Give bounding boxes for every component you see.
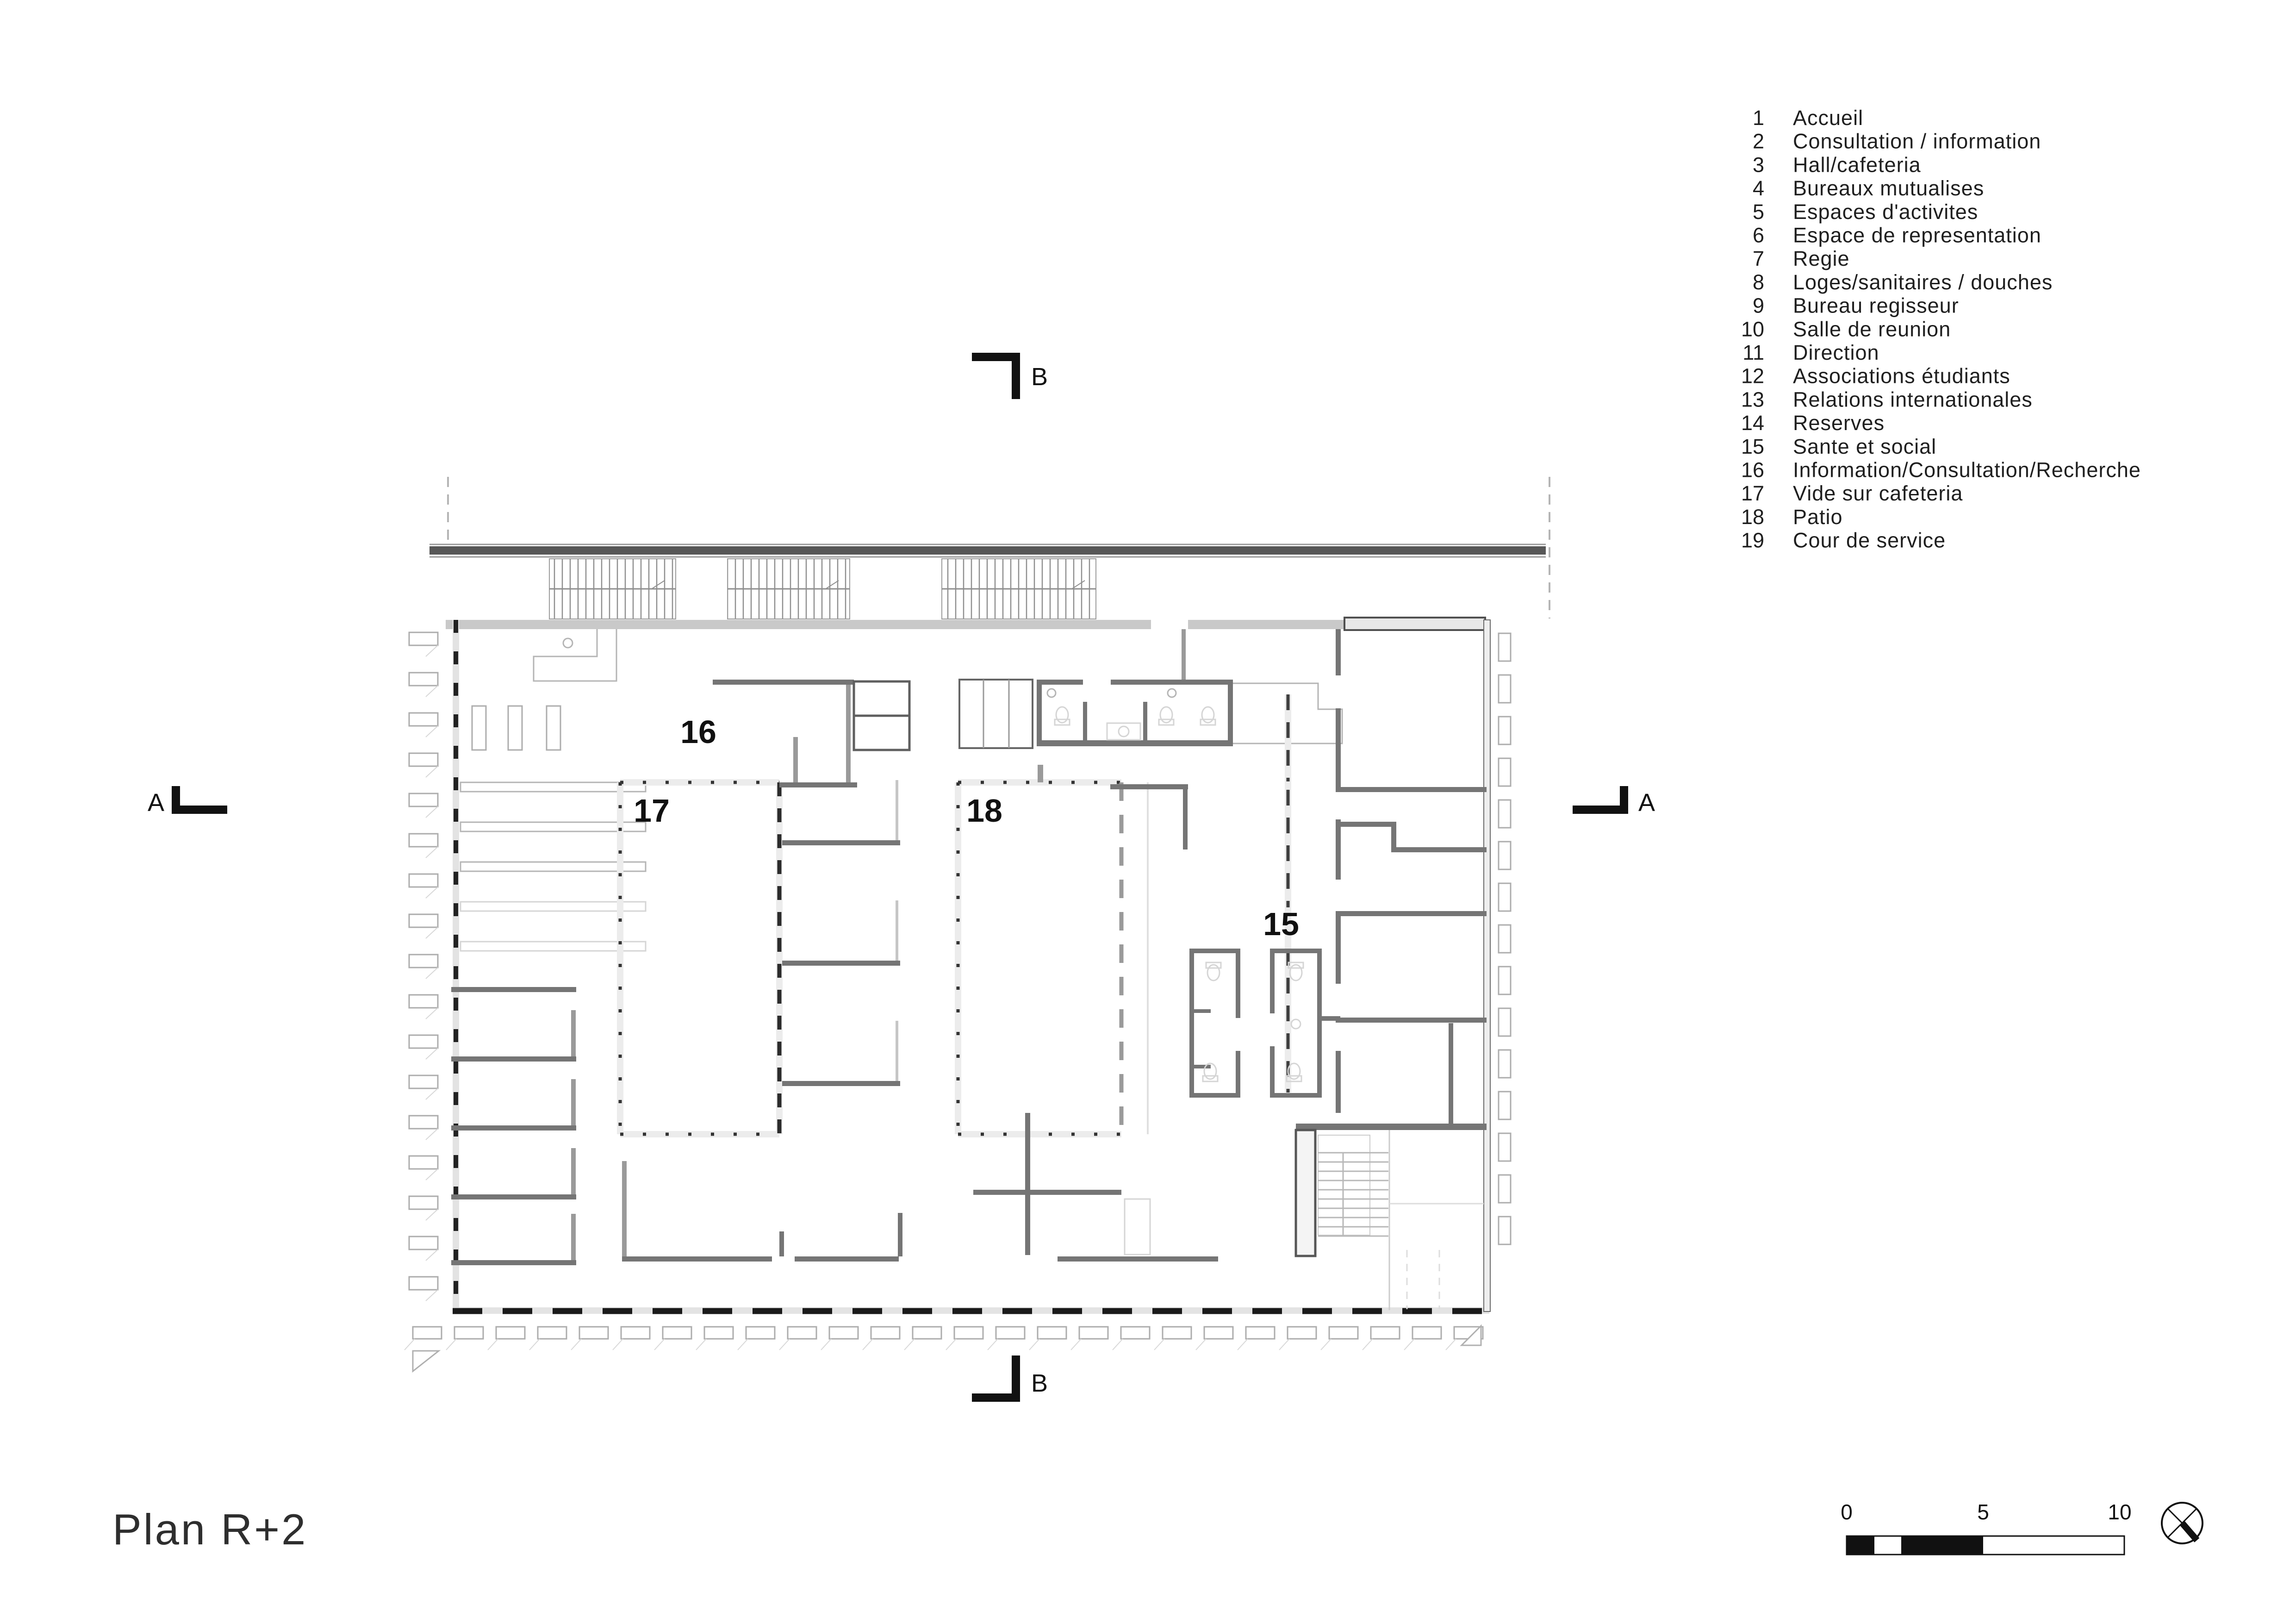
sanitary-cabins-part [1194, 1065, 1211, 1068]
wc-fixture-icon [1201, 707, 1215, 725]
legend-item-label: Accueil [1793, 106, 1863, 130]
reception-desk [534, 629, 616, 681]
sanitary-block-top-part [1107, 723, 1140, 740]
facade-fins-right [1499, 633, 1511, 1244]
sanitary-block-top-part [1228, 680, 1233, 746]
fin-tick [946, 1339, 956, 1350]
room-label-16: 16 [680, 714, 716, 750]
legend-item-number: 1 [1753, 106, 1764, 130]
sanitary-block-top-part [1047, 689, 1056, 697]
regie-walls [713, 680, 1033, 787]
legend-item-label: Cour de service [1793, 529, 1946, 552]
wc-fixture-icon [1206, 962, 1221, 981]
south-rooms-walls-part [898, 1213, 902, 1256]
wc-fixture-icon-part [1207, 965, 1220, 981]
fin-tick [1238, 1339, 1248, 1350]
sanitary-cabins-part [1270, 949, 1322, 953]
facade-fin [1079, 1327, 1108, 1339]
facade-fin [1499, 1217, 1511, 1244]
sanitary-cabins-part [1270, 1046, 1275, 1098]
regie-walls-part [846, 685, 851, 787]
shelving-units-part [472, 706, 486, 750]
south-rooms-walls-part [1058, 1256, 1218, 1262]
facade-fin [1412, 1327, 1441, 1339]
legend-item-label: Reserves [1793, 411, 1885, 435]
fin-tick [426, 847, 438, 858]
right-wing-walls-part [1336, 819, 1341, 880]
floor-plan: 16 17 18 15 [404, 477, 1549, 1371]
facade-fin [409, 753, 438, 766]
skylight-hatch-part [728, 559, 850, 619]
south-rooms-walls-part [1025, 1113, 1030, 1255]
facade-fin [1499, 967, 1511, 994]
staircase-part [1318, 1135, 1370, 1235]
sanitary-cabins-part [1322, 1016, 1340, 1021]
facade-fin [409, 673, 438, 686]
sanitary-cabins-part [1291, 1019, 1300, 1029]
reception-desk-part [563, 638, 572, 648]
page-title: Plan R+2 [112, 1505, 307, 1554]
partition-wall [782, 1081, 900, 1086]
fin-tick [1196, 1339, 1206, 1350]
sanitary-block-top-part [1037, 680, 1042, 745]
fin-tick [426, 1249, 438, 1261]
top-wall [446, 618, 1485, 680]
facade-fin [409, 834, 438, 847]
legend-item-number: 10 [1741, 317, 1764, 341]
legend-item-number: 13 [1741, 387, 1764, 411]
facade-fin [1499, 925, 1511, 953]
legend-item-number: 4 [1753, 176, 1764, 200]
partition-return [896, 900, 898, 961]
fin-tick [571, 1339, 581, 1350]
partition-wall [451, 1260, 576, 1265]
legend-item-label: Information/Consultation/Recherche [1793, 458, 2141, 482]
north-arrow-icon-part [2182, 1523, 2197, 1540]
fin-tick [426, 766, 438, 777]
architectural-floor-plan: 16 17 18 15 B B A A 1Accueil2Consultat [0, 0, 2296, 1624]
south-rooms-walls-part [973, 1190, 1121, 1195]
fin-tick [696, 1339, 706, 1350]
sanitary-cabins [1189, 949, 1340, 1098]
facade-fin [746, 1327, 775, 1339]
legend-item-number: 2 [1753, 130, 1764, 153]
partition-return [571, 1148, 576, 1194]
sanitary-cabins-part [1189, 1093, 1240, 1098]
facade-fin [409, 1035, 438, 1048]
legend-item-label: Consultation / information [1793, 130, 2041, 153]
fin-tick [488, 1339, 498, 1350]
fin-tick [426, 1008, 438, 1019]
legend-item-label: Espaces d'activites [1793, 200, 1978, 224]
right-wing-walls-part [1391, 822, 1396, 850]
facade-fin [409, 1196, 438, 1209]
fin-tick [654, 1339, 665, 1350]
facade-fin [1371, 1327, 1400, 1339]
legend-item-number: 17 [1741, 481, 1764, 505]
legend-item-label: Espace de representation [1793, 224, 2041, 247]
shelving-units-part [508, 706, 522, 750]
facade-fin [1499, 1175, 1511, 1203]
facade-fin [409, 955, 438, 968]
facade-fin [1288, 1327, 1316, 1339]
south-rooms-walls-part [622, 1161, 627, 1256]
bottom-facade [453, 1307, 1489, 1314]
facade-fin [1329, 1327, 1358, 1339]
regie-walls-part [713, 680, 854, 685]
facade-fin [1121, 1327, 1150, 1339]
fin-tick [1029, 1339, 1039, 1350]
sanitary-cabins-part [1317, 949, 1322, 1098]
partition-wall [451, 1194, 576, 1199]
legend-item-label: Patio [1793, 505, 1843, 529]
right-wing-walls-part [1336, 787, 1487, 792]
right-wing-walls-part [1391, 847, 1487, 852]
legend-item-label: Associations étudiants [1793, 364, 2010, 388]
sanitary-block-top-part [1119, 726, 1129, 737]
fin-tick [613, 1339, 623, 1350]
facade-fin [1499, 842, 1511, 869]
facade-fin [1163, 1327, 1191, 1339]
right-wing-walls [1336, 629, 1487, 1124]
facade-fin [1204, 1327, 1233, 1339]
sanitary-cabins-part [1189, 949, 1194, 1098]
fin-tick [1446, 1339, 1456, 1350]
legend-item-number: 14 [1741, 411, 1764, 435]
legend-item-label: Relations internationales [1793, 387, 2033, 411]
wc-fixture-icon-part [1160, 707, 1172, 723]
roof-canopy [429, 544, 1546, 557]
facade-fin [454, 1327, 483, 1339]
legend-item-number: 3 [1753, 153, 1764, 176]
section-marker-a-left-part [172, 806, 227, 814]
facade-fin [409, 1156, 438, 1169]
patio-east-walls-part [1183, 789, 1188, 849]
facade-fin [1499, 1008, 1511, 1036]
facade-fin [1499, 717, 1511, 744]
fin-tick [404, 1339, 415, 1350]
fin-tick [738, 1339, 748, 1350]
right-wing-walls-part [1336, 1051, 1341, 1113]
legend-item-label: Vide sur cafeteria [1793, 481, 1963, 505]
fin-tick [1321, 1339, 1331, 1350]
sanitary-cabins-part [1236, 1051, 1240, 1098]
section-letter-b-bottom: B [1031, 1369, 1048, 1397]
fin-tick [426, 1209, 438, 1220]
sanitary-block-top-part [1037, 740, 1233, 746]
scale-bar-part [1901, 1536, 1983, 1555]
regie-walls-part [779, 782, 857, 787]
fin-tick [426, 1048, 438, 1059]
skylight-hatch-part [942, 559, 1096, 619]
legend-item-number: 16 [1741, 458, 1764, 482]
facade-fin [409, 874, 438, 887]
top-wall-part [446, 620, 1151, 629]
fin-tick [426, 1129, 438, 1140]
scale-bar: 0 5 10 [1841, 1500, 2131, 1555]
facade-fin [663, 1327, 691, 1339]
section-marker-b-bottom-part [972, 1393, 1020, 1402]
facade-fin [579, 1327, 608, 1339]
facade-fin [829, 1327, 858, 1339]
facade-fin [913, 1327, 941, 1339]
section-marker-b-bottom: B [972, 1355, 1048, 1402]
left-facade [453, 620, 459, 1312]
fin-tick [426, 806, 438, 818]
facade-fin [409, 995, 438, 1008]
right-wing-walls-part [1336, 708, 1341, 787]
right-facade [1484, 620, 1490, 1312]
facade-fin [704, 1327, 733, 1339]
sanitary-cabins-part [1270, 1093, 1322, 1098]
legend-item-label: Sante et social [1793, 435, 1936, 458]
south-rooms-walls-part [1125, 1199, 1150, 1255]
fin-tick [426, 968, 438, 979]
legend-item-label: Regie [1793, 247, 1850, 270]
legend-item-number: 19 [1741, 529, 1764, 552]
shelving-units [472, 706, 560, 750]
wc-fixtures [1055, 707, 1215, 725]
facade-fin [871, 1327, 900, 1339]
partition-wall [451, 987, 576, 992]
legend-item-label: Hall/cafeteria [1793, 153, 1921, 176]
legend-item-label: Loges/sanitaires / douches [1793, 270, 2053, 294]
fin-tick [426, 726, 438, 737]
facade-fin [1499, 758, 1511, 786]
fin-tick [904, 1339, 915, 1350]
facade-fin [1499, 1133, 1511, 1161]
wc-fixture-icon [1159, 707, 1174, 725]
fin-tick [1071, 1339, 1081, 1350]
facade-fin [621, 1327, 650, 1339]
patio-18-boundary-part [1038, 765, 1043, 782]
partition-wall [451, 1125, 576, 1131]
sanitary-block-top-part [1143, 702, 1147, 743]
facade-fin [409, 713, 438, 726]
facade-fin [409, 914, 438, 927]
south-rooms-walls-part [622, 1256, 772, 1262]
legend-item-number: 6 [1753, 224, 1764, 247]
section-marker-a-right-part [1573, 806, 1628, 814]
fin-tick [426, 1088, 438, 1099]
void-17-boundary [620, 782, 779, 1134]
skylight-hatch-part [549, 559, 676, 619]
legend-item-number: 11 [1742, 341, 1764, 364]
facade-fin [996, 1327, 1025, 1339]
sanitary-block-top-part [1168, 689, 1176, 697]
facade-fin [409, 1277, 438, 1290]
partition-return [896, 1021, 898, 1081]
right-wing-walls-part [1336, 914, 1341, 984]
facade-fins-left [409, 632, 438, 1301]
scale-bar-part [1847, 1536, 1874, 1555]
fin-tick [988, 1339, 998, 1350]
legend-item-number: 15 [1741, 435, 1764, 458]
regie-walls-part [959, 680, 1033, 748]
stair-treads [1318, 1153, 1388, 1236]
facade-fin [409, 632, 438, 645]
facade-fin [409, 1075, 438, 1088]
section-letter-a-right: A [1638, 789, 1655, 817]
partition-return [571, 1079, 576, 1125]
patio-east-walls-part [1110, 784, 1188, 789]
section-marker-b-top: B [972, 353, 1048, 399]
legend: 1Accueil2Consultation / information3Hall… [1741, 106, 2141, 552]
regie-walls-part [793, 737, 798, 782]
south-rooms-walls-part [795, 1256, 899, 1262]
facade-fin [413, 1327, 442, 1339]
legend-item-label: Bureaux mutualises [1793, 176, 1984, 200]
scale-tick-5: 5 [1977, 1500, 1989, 1524]
sanitary-cabins-part [1236, 949, 1240, 1018]
sanitary-block-top-part [1083, 702, 1087, 743]
top-wall-part [1188, 620, 1345, 629]
facade-fins-bottom [404, 1327, 1483, 1350]
fin-tick [426, 686, 438, 697]
fin-tick [821, 1339, 831, 1350]
facade-fin [1499, 883, 1511, 911]
wc-fixture-icon-part [1056, 707, 1068, 723]
legend-item-label: Direction [1793, 341, 1879, 364]
sanitary-cabins-part [1270, 949, 1275, 1013]
wc-fixture-icon-part [1290, 965, 1302, 981]
top-wall-part [1182, 629, 1186, 680]
right-wing-walls-part [1336, 822, 1396, 827]
section-letter-b-top: B [1031, 363, 1048, 391]
fin-tick [1363, 1339, 1373, 1350]
top-wall-part [1344, 618, 1485, 630]
legend-item-label: Bureau regisseur [1793, 294, 1959, 318]
fin-tick [426, 887, 438, 898]
facade-fin [1499, 800, 1511, 828]
staircase-part [1296, 1124, 1487, 1130]
section-marker-a-left: A [148, 786, 227, 817]
section-marker-b-top-part [1012, 353, 1020, 399]
fin-tick [1404, 1339, 1414, 1350]
fin-tick [426, 645, 438, 656]
scale-bar-part [1847, 1536, 2124, 1555]
skylight-hatch [549, 559, 1096, 619]
shelving-units-part [547, 706, 560, 750]
partition-return [571, 1214, 576, 1260]
reception-desk-part [534, 629, 616, 681]
staircase [1296, 1124, 1487, 1310]
section-letter-a-left: A [148, 789, 164, 817]
right-wing-walls-part [1449, 1023, 1453, 1124]
sanitary-block-top [1037, 680, 1342, 746]
facade-fin [538, 1327, 566, 1339]
scale-tick-0: 0 [1841, 1500, 1853, 1524]
facade-fin [1246, 1327, 1275, 1339]
facade-fin [496, 1327, 525, 1339]
room-label-18: 18 [966, 793, 1002, 829]
fin-tick [1279, 1339, 1289, 1350]
legend-item-label: Salle de reunion [1793, 317, 1951, 341]
legend-item-number: 9 [1753, 294, 1764, 318]
wc-fixture-icon [1055, 707, 1070, 725]
facade-fin [409, 793, 438, 806]
legend-item-number: 18 [1741, 505, 1764, 529]
facade-fin [1038, 1327, 1066, 1339]
partition-wall [782, 840, 900, 845]
sanitary-cabins-part [1189, 949, 1240, 953]
wc-fixture-icon-part [1202, 707, 1214, 723]
fin-tick [863, 1339, 873, 1350]
left-office-partitions [451, 987, 576, 1265]
sanitary-block-top-part [1037, 680, 1083, 685]
drawing-sheet: 16 17 18 15 B B A A 1Accueil2Consultat [0, 0, 2296, 1624]
fin-tick [426, 927, 438, 938]
sanitary-cabins-part [1194, 1009, 1211, 1013]
scale-tick-10: 10 [2108, 1500, 2131, 1524]
middle-office-partitions [782, 780, 900, 1086]
legend-item-number: 12 [1741, 364, 1764, 388]
section-marker-a-right: A [1573, 786, 1655, 817]
legend-item-number: 5 [1753, 200, 1764, 224]
facade-fin [1499, 1050, 1511, 1078]
right-wing-walls-part [1336, 911, 1487, 916]
facade-fin [409, 1237, 438, 1249]
facade-fin [954, 1327, 983, 1339]
fin-tick [779, 1339, 790, 1350]
fin-tick [426, 1290, 438, 1301]
fin-tick [1154, 1339, 1164, 1350]
facade-fin [1499, 1092, 1511, 1119]
partition-wall [451, 1056, 576, 1062]
north-arrow-icon [2162, 1503, 2203, 1543]
facade-fin [409, 1116, 438, 1129]
right-wing-walls-part [1336, 1018, 1487, 1023]
fin-tick [1113, 1339, 1123, 1350]
facade-fin [1499, 675, 1511, 703]
roof-canopy-part [429, 546, 1546, 555]
legend-item-number: 7 [1753, 247, 1764, 270]
fin-tick [529, 1339, 540, 1350]
partition-return [571, 1010, 576, 1056]
partition-wall [782, 961, 900, 966]
sanitary-block-top-part [1111, 680, 1233, 685]
right-wing-walls-part [1336, 629, 1341, 675]
legend-item-number: 8 [1753, 270, 1764, 294]
room-label-17: 17 [634, 793, 670, 829]
room-label-15: 15 [1263, 906, 1299, 942]
fin-tick [446, 1339, 456, 1350]
right-facade-part [1484, 620, 1490, 1312]
staircase-part [1296, 1130, 1315, 1256]
partition-return [896, 780, 898, 840]
facade-fin [788, 1327, 816, 1339]
fin-tick [426, 1169, 438, 1180]
south-rooms-walls-part [779, 1231, 784, 1256]
facade-fin [1499, 633, 1511, 661]
facade-corner-fins-part [413, 1351, 439, 1371]
